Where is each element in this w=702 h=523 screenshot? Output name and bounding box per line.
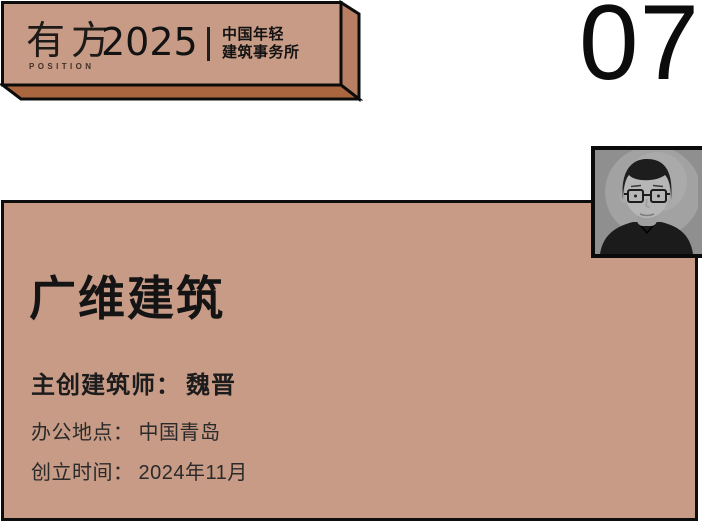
position-wordmark: POSITION [29,62,94,71]
office-location-row: 办公地点：中国青岛 [31,416,221,445]
feature-index-number: 07 [579,0,700,96]
portrait-illustration [595,150,698,254]
founded-date-label: 创立时间： [31,462,134,484]
chief-architect-label: 主创建筑师： [31,372,181,399]
founded-date-row: 创立时间：2024年11月 [31,456,248,485]
chief-architect-row: 主创建筑师：魏晋 [31,365,236,400]
firm-name-title: 广维建筑 [29,275,225,322]
founded-date-value: 2024年11月 [139,462,248,484]
subtitle-line-2: 建筑事务所 [222,44,300,62]
series-subtitle: 中国年轻 建筑事务所 [222,26,300,61]
poster-page: 有方 POSITION 2025 中国年轻 建筑事务所 07 广维建筑 主创建筑… [0,0,702,523]
year-label: 2025 [101,23,198,61]
banner-side-face [341,3,359,100]
office-location-value: 中国青岛 [139,422,221,444]
subtitle-line-1: 中国年轻 [222,26,300,44]
architect-portrait-photo [591,146,702,258]
banner-content: 有方 POSITION 2025 中国年轻 建筑事务所 [0,0,341,85]
banner-bottom-face [3,85,360,99]
brand-banner: 有方 POSITION 2025 中国年轻 建筑事务所 [0,0,366,106]
office-location-label: 办公地点： [31,422,134,444]
vertical-divider [207,27,210,61]
chief-architect-value: 魏晋 [186,372,236,399]
